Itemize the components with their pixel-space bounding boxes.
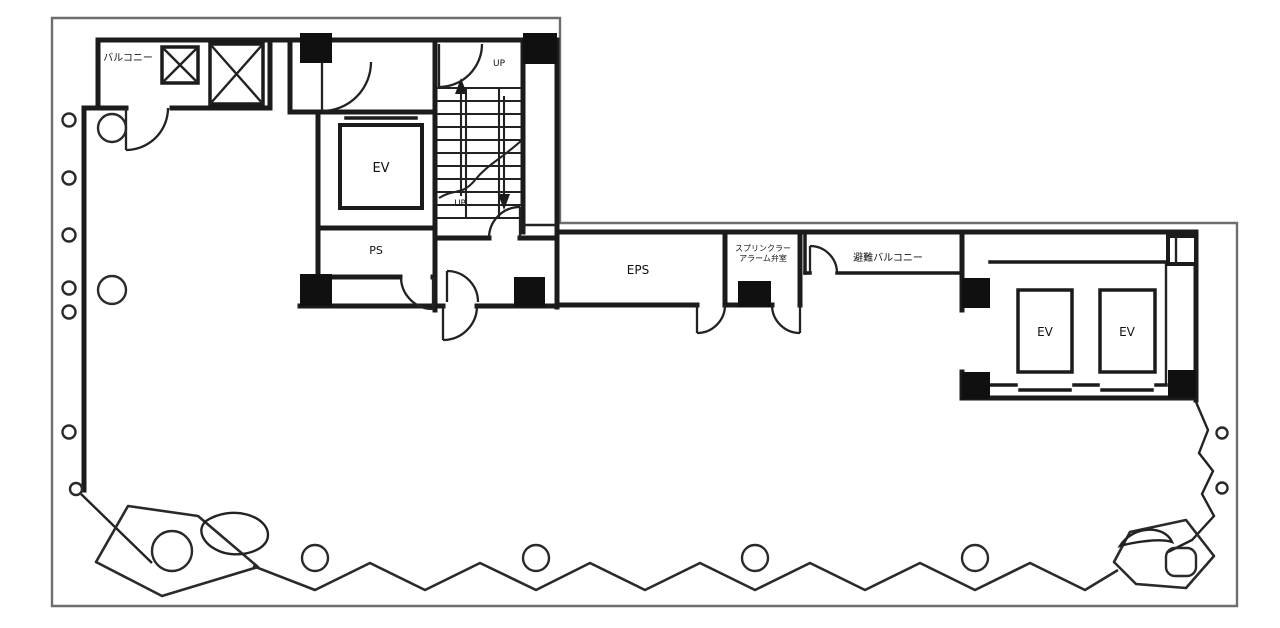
label-balcony: バルコニー bbox=[103, 52, 153, 64]
label-sprinkler-line1: スプリンクラー bbox=[735, 244, 791, 253]
label-eps: EPS bbox=[627, 263, 649, 277]
floor-plan-page: EV EV EV UP UP bbox=[0, 0, 1280, 628]
zigzag-window-line bbox=[253, 563, 1118, 590]
label-sprinkler-line2: アラーム弁室 bbox=[739, 253, 787, 263]
label-elevator-right-2: EV bbox=[1119, 325, 1136, 339]
label-evacuation-balcony: 避難バルコニー bbox=[853, 251, 923, 264]
corner-ornament-left bbox=[70, 483, 268, 596]
floor-plan-svg: EV EV EV UP UP bbox=[0, 0, 1280, 628]
label-elevator-left: EV bbox=[372, 161, 389, 176]
corner-ornament-right bbox=[1114, 402, 1228, 588]
label-elevator-right-1: EV bbox=[1037, 325, 1054, 339]
label-pipe-shaft: PS bbox=[369, 244, 383, 257]
corner-box bbox=[1168, 236, 1196, 264]
left-facade-mullions bbox=[63, 114, 76, 439]
round-columns bbox=[98, 114, 988, 571]
staircase: UP UP bbox=[437, 59, 522, 218]
label-up-top: UP bbox=[493, 59, 506, 69]
elevators-right: EV EV bbox=[1018, 290, 1155, 372]
shaft-x-boxes bbox=[162, 44, 263, 104]
elevator-left: EV bbox=[340, 118, 422, 208]
label-up-bottom: UP bbox=[454, 199, 465, 209]
elevator-block-walls bbox=[962, 232, 1196, 400]
